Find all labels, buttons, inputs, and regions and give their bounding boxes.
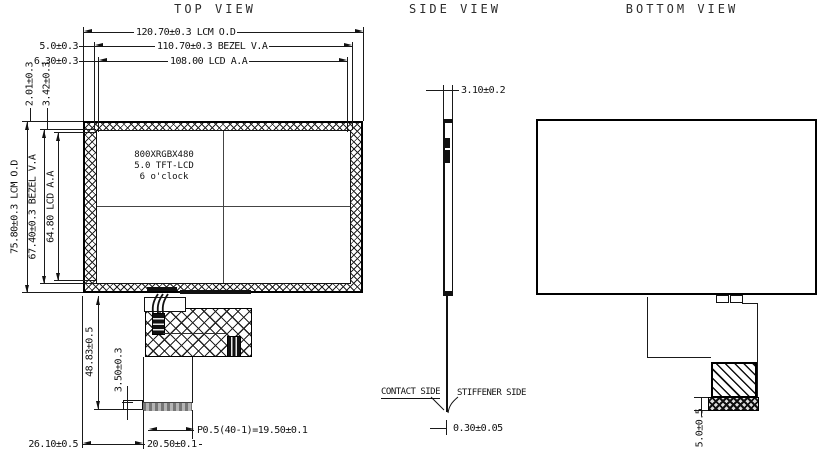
dim-lcm-od-height: 75.80±0.3 LCM O.D — [10, 160, 21, 254]
lcd-module-drawing: TOP VIEW SIDE VIEW BOTTOM VIEW 800XRGBX4… — [0, 0, 822, 460]
ext-line — [40, 129, 96, 130]
fpc-outline — [647, 297, 648, 357]
profile-component — [445, 150, 450, 163]
leader-line — [79, 46, 94, 47]
arrow-right-icon — [344, 43, 352, 47]
ext-line — [363, 27, 364, 121]
ext-line — [347, 57, 348, 132]
profile-component — [445, 138, 450, 148]
stiffener-mid-line — [163, 333, 228, 334]
arrow-left-icon — [95, 43, 103, 47]
arrow-right-icon — [186, 427, 194, 431]
dim-lcm-od-width: 120.70±0.3 LCM O.D — [134, 27, 237, 38]
ext-line — [98, 57, 99, 132]
stiffener-contact-strip — [708, 397, 759, 411]
fpc-exit — [144, 297, 186, 312]
dim-connector-pitch: P0.5(40-1)=19.50±0.1 — [197, 425, 307, 436]
arrow-left-icon — [84, 29, 92, 33]
arrow-up-icon — [25, 122, 29, 130]
fpc-tail-edge — [192, 357, 193, 403]
fpc-connector-component — [152, 313, 165, 335]
ext-line — [22, 121, 83, 122]
arrow-left-icon — [83, 441, 91, 445]
dim-line-fpc-thickness — [430, 428, 446, 429]
arrow-right-icon — [339, 58, 347, 62]
dim-fpc-length: 48.83±0.5 — [85, 327, 96, 377]
dim-connector-width: 20.50±0.1 — [145, 439, 199, 450]
arrow-down-icon — [96, 401, 100, 409]
tick — [122, 409, 133, 410]
fpc-outline — [742, 303, 757, 304]
dim-line-contact-length — [127, 386, 128, 420]
horizontal-centerline — [97, 206, 350, 207]
fpc-connector-component — [227, 336, 241, 357]
fpc-side-line — [446, 296, 448, 412]
dim-fpc-thickness: 0.30±0.05 — [453, 423, 503, 434]
fpc-bond-bar — [180, 290, 251, 294]
arrow-right-icon — [355, 29, 363, 33]
dim-module-thickness: 3.10±0.2 — [461, 85, 505, 96]
connector-contact-fingers — [143, 402, 192, 411]
contact-side-label: CONTACT SIDE — [381, 387, 440, 399]
panel-description: 800XRGBX480 5.0 TFT-LCD 6 o'clock — [126, 150, 202, 183]
tick — [446, 420, 447, 435]
top-view-title: TOP VIEW — [159, 2, 271, 16]
vertical-centerline — [223, 131, 224, 283]
dim-lcd-aa-width: 108.00 LCD A.A — [168, 56, 249, 67]
fpc-fold-tab — [730, 295, 743, 303]
dim-bezel-va-width: 110.70±0.3 BEZEL V.A — [155, 41, 269, 52]
dim-line-connector-offset — [82, 444, 143, 445]
dim-line-fpc-length — [98, 296, 99, 409]
arrow-right-icon — [135, 441, 143, 445]
ext-line — [54, 132, 96, 133]
leader-line — [30, 108, 31, 121]
ext-line — [54, 280, 96, 281]
ext-line — [452, 91, 453, 119]
tick — [143, 440, 144, 449]
dim-line-lcd-height — [58, 132, 59, 281]
dim-connector-offset: 26.10±0.5 — [26, 439, 78, 450]
leader-line — [47, 108, 48, 130]
arrow-up-icon — [96, 297, 100, 305]
leader-line — [79, 61, 98, 62]
ext-line — [94, 42, 95, 130]
panel-resolution: 800XRGBX480 — [126, 150, 202, 161]
ext-line — [443, 91, 444, 119]
panel-type: 5.0 TFT-LCD — [126, 161, 202, 172]
arrow-up-icon — [56, 133, 60, 141]
ext-line — [83, 27, 84, 121]
stiffener-side-label: STIFFENER SIDE — [457, 388, 526, 399]
stiffener-side-leader — [448, 397, 458, 413]
arrow-left-icon — [99, 58, 107, 62]
fpc-outline — [757, 303, 758, 397]
dim-contact-length: 3.50±0.3 — [114, 348, 125, 392]
tick — [122, 402, 133, 403]
panel-viewing-direction: 6 o'clock — [126, 172, 202, 183]
arrow-left-icon — [149, 427, 157, 431]
fpc-fold-tab — [716, 295, 729, 303]
dim-lcd-side-gap: 3.42±0.3 — [42, 62, 53, 106]
dim-bezel-va-height: 67.40±0.3 BEZEL V.A — [28, 155, 39, 260]
side-view-title: SIDE VIEW — [399, 2, 511, 16]
dim-lcd-top-gap: 6.30±0.3 — [30, 56, 78, 67]
ext-line — [352, 42, 353, 130]
dim-bezel-top-gap: 5.0±0.3 — [30, 41, 78, 52]
dim-stiffener-height: 5.0±0.5 — [695, 409, 706, 448]
fpc-bond-bar — [147, 287, 177, 291]
ext-line — [82, 296, 83, 448]
dim-bezel-side-gap: 2.01±0.3 — [25, 62, 36, 106]
bottom-view-title: BOTTOM VIEW — [620, 2, 744, 16]
bottom-view-outline — [536, 119, 817, 295]
ext-line — [94, 409, 143, 410]
fpc-outline — [647, 357, 711, 358]
ext-line — [40, 283, 96, 284]
dim-lcd-aa-height: 64.80 LCD A.A — [46, 171, 57, 243]
folded-stiffener-block — [711, 362, 757, 398]
arrow-up-icon — [42, 130, 46, 138]
fpc-tail-edge — [143, 357, 144, 403]
ext-line — [22, 292, 83, 293]
